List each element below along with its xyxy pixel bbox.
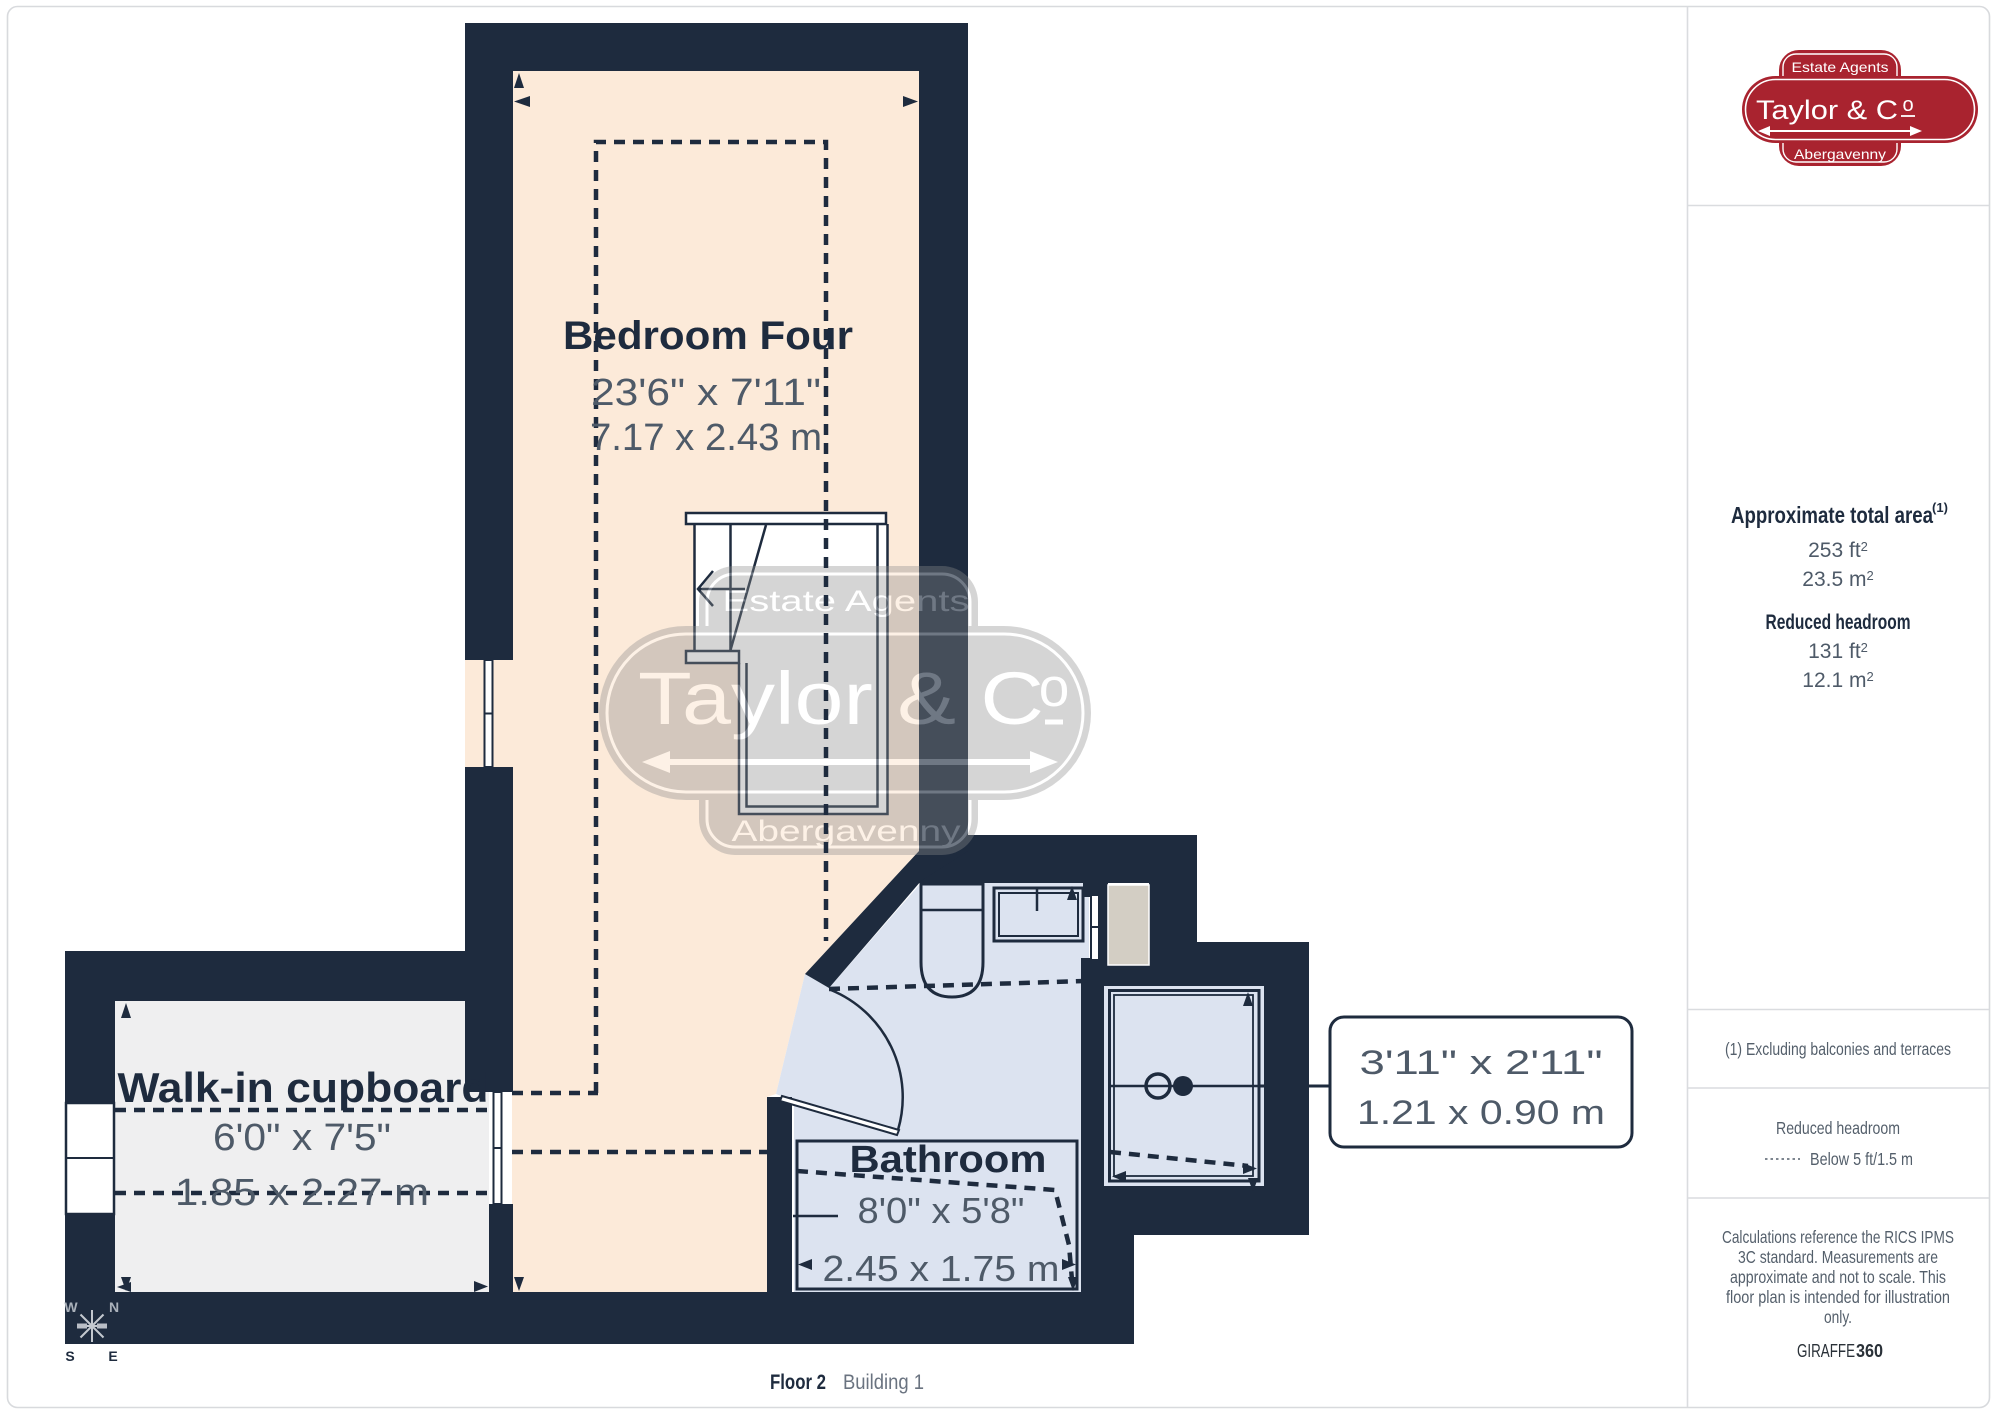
svg-text:S: S [65, 1348, 74, 1364]
svg-text:E: E [108, 1348, 117, 1364]
svg-text:Estate Agents: Estate Agents [723, 585, 970, 618]
svg-text:Approximate total area: Approximate total area [1731, 502, 1934, 528]
svg-text:12.1 m2: 12.1 m2 [1802, 669, 1873, 692]
svg-text:Walk-in cupboard: Walk-in cupboard [118, 1064, 489, 1111]
svg-text:3'11" x 2'11": 3'11" x 2'11" [1360, 1044, 1603, 1082]
svg-text:Abergavenny: Abergavenny [732, 815, 961, 848]
svg-text:3C standard. Measurements are: 3C standard. Measurements are [1738, 1247, 1938, 1267]
svg-text:Estate Agents: Estate Agents [1792, 59, 1889, 75]
svg-text:Abergavenny: Abergavenny [1794, 146, 1886, 162]
svg-text:Floor 2: Floor 2 [770, 1370, 826, 1394]
svg-text:Building 1: Building 1 [843, 1370, 924, 1394]
svg-text:floor plan is intended for ill: floor plan is intended for illustration [1726, 1287, 1950, 1307]
svg-text:o: o [1039, 656, 1070, 718]
svg-text:N: N [109, 1299, 119, 1315]
svg-text:only.: only. [1824, 1307, 1852, 1327]
svg-text:o: o [1902, 94, 1913, 116]
svg-text:23'6" x 7'11": 23'6" x 7'11" [591, 372, 821, 414]
svg-text:Reduced headroom: Reduced headroom [1766, 610, 1911, 634]
svg-text:7.17 x 2.43 m: 7.17 x 2.43 m [590, 417, 822, 459]
svg-text:6'0" x 7'5": 6'0" x 7'5" [213, 1117, 391, 1159]
svg-text:1.21 x 0.90 m: 1.21 x 0.90 m [1357, 1094, 1605, 1132]
svg-text:1.85 x 2.27 m: 1.85 x 2.27 m [175, 1172, 429, 1214]
svg-text:Below 5 ft/1.5 m: Below 5 ft/1.5 m [1810, 1149, 1913, 1169]
svg-text:(1) Excluding balconies and te: (1) Excluding balconies and terraces [1725, 1039, 1951, 1059]
svg-text:GIRAFFE: GIRAFFE [1797, 1341, 1855, 1361]
svg-text:(1): (1) [1932, 500, 1948, 515]
svg-text:23.5 m2: 23.5 m2 [1802, 568, 1873, 591]
svg-text:Reduced headroom: Reduced headroom [1776, 1118, 1900, 1138]
svg-text:Calculations reference the RIC: Calculations reference the RICS IPMS [1722, 1227, 1954, 1247]
svg-text:Bedroom Four: Bedroom Four [563, 314, 853, 358]
svg-text:Taylor & C: Taylor & C [1756, 95, 1898, 125]
svg-text:8'0" x 5'8": 8'0" x 5'8" [858, 1190, 1025, 1231]
svg-text:253 ft2: 253 ft2 [1808, 539, 1868, 562]
svg-text:approximate and not to scale.: approximate and not to scale. This [1730, 1267, 1946, 1287]
svg-text:Taylor & C: Taylor & C [638, 657, 1044, 740]
svg-text:Bathroom: Bathroom [850, 1139, 1047, 1181]
svg-text:W: W [64, 1299, 78, 1315]
svg-text:131 ft2: 131 ft2 [1808, 640, 1868, 663]
svg-text:360: 360 [1856, 1341, 1883, 1361]
svg-text:2.45 x 1.75 m: 2.45 x 1.75 m [823, 1248, 1060, 1289]
